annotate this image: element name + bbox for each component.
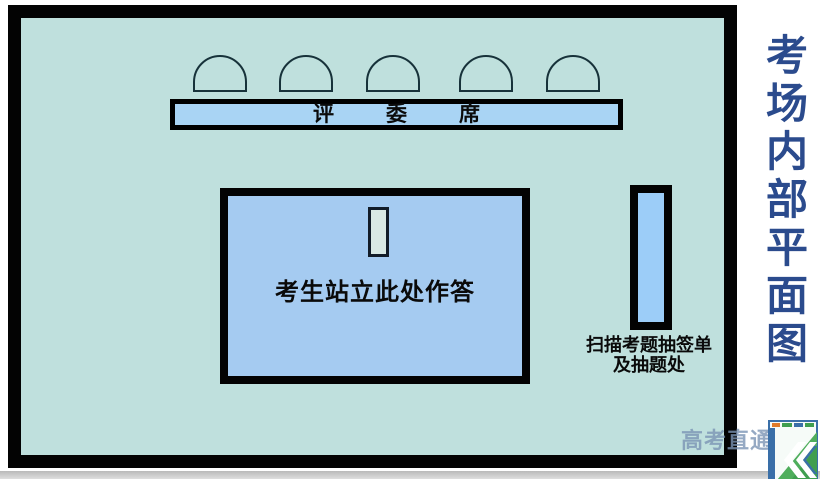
exam-room-floorplan-slide: 评 委 席 考生站立此处作答 扫描考题抽签单 及抽题处 考 场 内 部 平 面 … <box>0 0 820 479</box>
scan-area-label: 扫描考题抽签单 及抽题处 <box>571 335 727 375</box>
judges-bench-label-char: 委 <box>386 104 407 125</box>
judge-chair <box>279 55 333 92</box>
scan-draw-table <box>630 185 672 330</box>
page-title-char: 面 <box>766 272 808 320</box>
gaokao-zhitongche-logo-icon <box>768 420 818 479</box>
judge-chair <box>459 55 513 92</box>
page-title-char: 平 <box>766 224 808 272</box>
judge-chair <box>366 55 420 92</box>
page-title-char: 考 <box>766 32 808 80</box>
judges-bench-label-char: 评 <box>313 104 334 125</box>
standing-position-marker <box>368 207 389 257</box>
scan-area-label-line1: 扫描考题抽签单 <box>571 335 727 355</box>
stage-label: 考生站立此处作答 <box>228 272 522 307</box>
judges-bench-label-char: 席 <box>459 104 480 125</box>
bottom-divider <box>0 471 820 479</box>
page-title-char: 内 <box>766 128 808 176</box>
judge-chair <box>546 55 600 92</box>
judge-chair <box>193 55 247 92</box>
judges-bench: 评 委 席 <box>170 99 623 130</box>
candidate-stage: 考生站立此处作答 <box>220 188 530 384</box>
page-title-char: 场 <box>766 80 808 128</box>
exam-room-outline: 评 委 席 考生站立此处作答 扫描考题抽签单 及抽题处 <box>8 5 737 468</box>
page-title: 考 场 内 部 平 面 图 <box>758 32 816 368</box>
page-title-char: 图 <box>766 320 808 368</box>
page-title-char: 部 <box>766 176 808 224</box>
scan-area-label-line2: 及抽题处 <box>571 355 727 375</box>
